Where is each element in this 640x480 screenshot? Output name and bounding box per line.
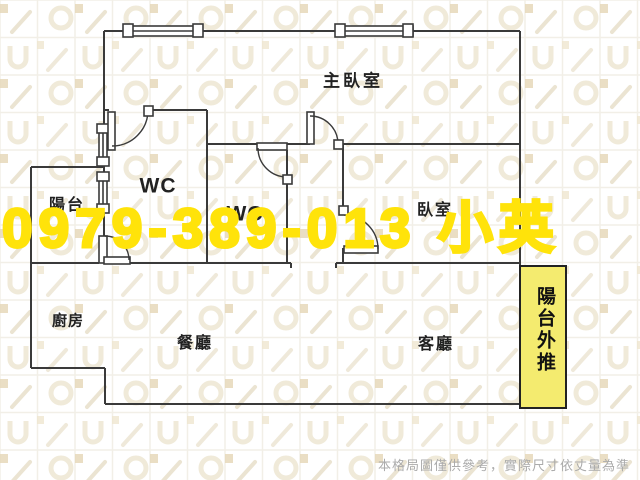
room-label-dining: 餐廳: [177, 336, 213, 352]
balcony-extension-label: 陽台外推: [531, 286, 558, 374]
room-label-wc1: WC: [140, 176, 177, 197]
room-label-living: 客廳: [418, 337, 454, 353]
window-top-right: [335, 24, 413, 37]
window-left-upper: [97, 124, 109, 166]
room-label-kitchen: 廚房: [52, 314, 84, 329]
room-label-master-bedroom: 主臥室: [323, 73, 383, 90]
disclaimer-text: 本格局圖僅供參考，實際尺寸依丈量為準: [378, 455, 630, 474]
window-top-left: [123, 24, 203, 37]
floorplan-image: 主臥室 WC WC 陽台 臥室 儲藏 廚房 餐廳 客廳 陽台外推 0979-38…: [0, 0, 640, 480]
phone-watermark: 0979-389-013 小英: [2, 201, 640, 256]
